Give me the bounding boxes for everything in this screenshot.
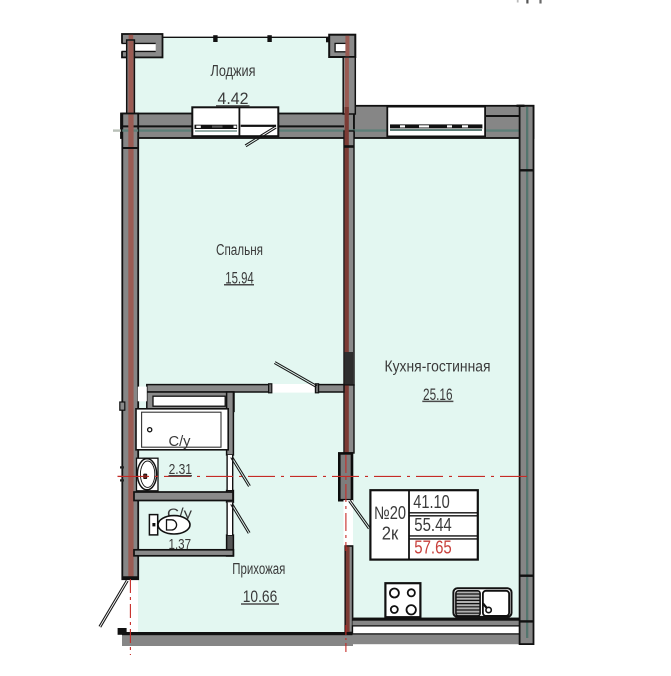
svg-text:1.37: 1.37 [169, 537, 192, 553]
svg-text:Прихожая: Прихожая [232, 561, 285, 578]
svg-text:Спальня: Спальня [216, 242, 263, 259]
svg-text:2к: 2к [382, 523, 399, 543]
svg-text:С/у: С/у [169, 434, 192, 450]
svg-text:Лоджия: Лоджия [211, 63, 256, 80]
svg-text:57.65: 57.65 [414, 537, 452, 557]
svg-text:Кухня-гостинная: Кухня-гостинная [385, 358, 491, 375]
svg-text:41.10: 41.10 [413, 492, 450, 512]
svg-text:№20: №20 [374, 503, 406, 523]
svg-text:55.44: 55.44 [414, 515, 452, 535]
